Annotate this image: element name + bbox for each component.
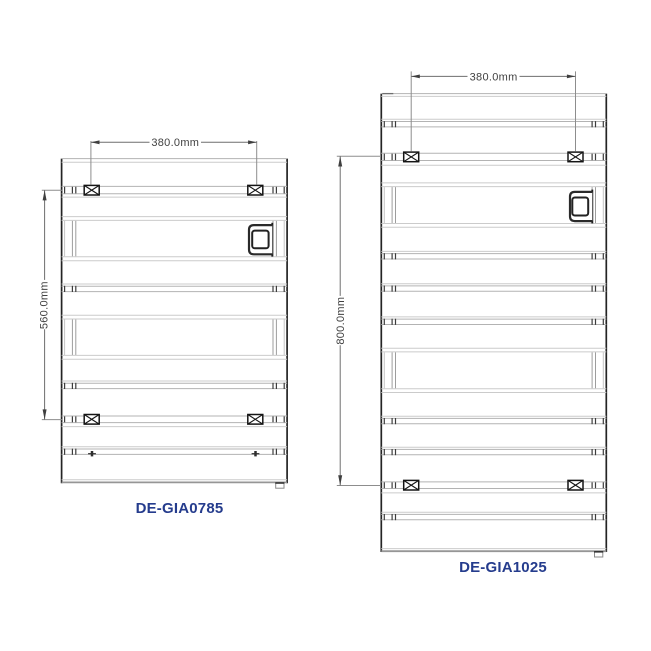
- svg-text:800.0mm: 800.0mm: [335, 297, 347, 345]
- svg-text:DE-GIA0785: DE-GIA0785: [136, 500, 224, 517]
- svg-text:380.0mm: 380.0mm: [470, 71, 518, 83]
- svg-text:DE-GIA1025: DE-GIA1025: [459, 559, 547, 576]
- svg-text:560.0mm: 560.0mm: [39, 281, 51, 329]
- svg-text:380.0mm: 380.0mm: [151, 137, 199, 149]
